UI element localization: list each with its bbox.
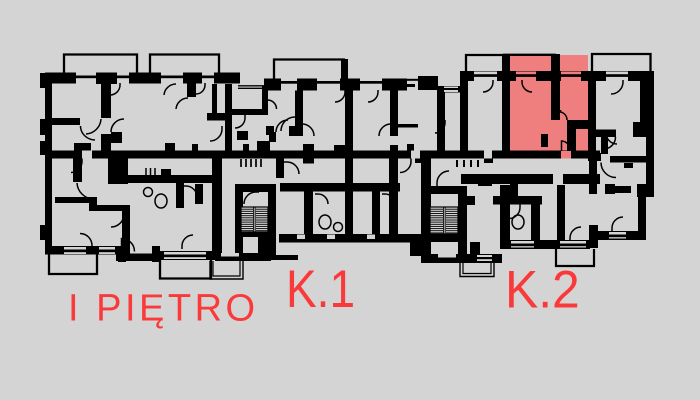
svg-text:I PIĘTRO: I PIĘTRO bbox=[68, 288, 259, 330]
svg-text:K.2: K.2 bbox=[505, 259, 580, 319]
svg-text:K.1: K.1 bbox=[286, 259, 355, 319]
